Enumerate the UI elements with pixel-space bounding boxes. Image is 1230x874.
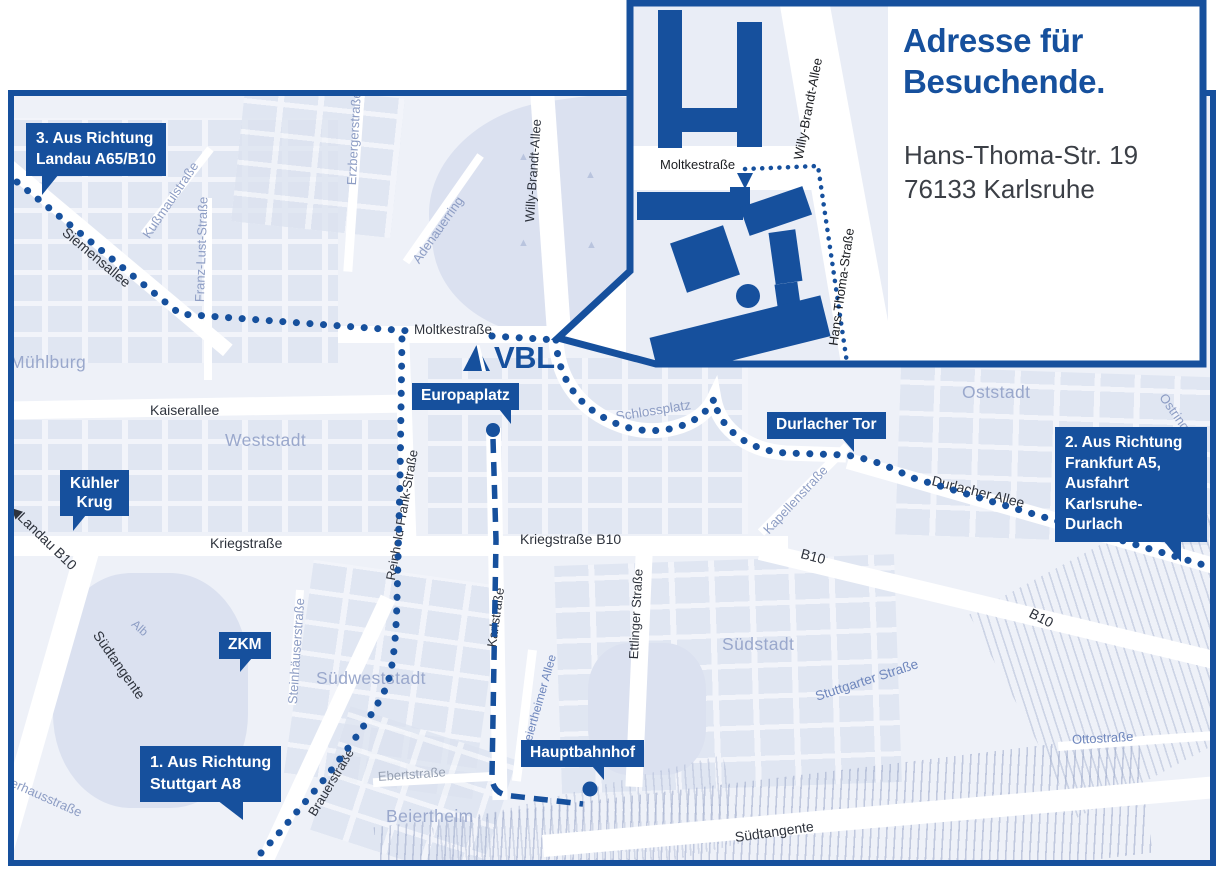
district-suedstadt: Südstadt: [722, 635, 794, 654]
city-blocks: [428, 358, 748, 534]
street-label-moltkestrasse: Moltkestraße: [414, 323, 492, 338]
city-blocks: [231, 90, 405, 238]
street-label-kriegstrasse: Kriegstraße: [210, 536, 282, 551]
tree-icon: ▲: [518, 238, 529, 249]
street-label-kapellenstrasse: Kapellenstraße: [761, 463, 831, 537]
inset-title-line1: Adresse für: [903, 20, 1105, 61]
street-label-kriegstrasse-b10: Kriegstraße B10: [520, 532, 621, 547]
city-blocks: [8, 420, 400, 532]
district-oststadt: Oststadt: [962, 383, 1030, 402]
tree-icon: ▲: [586, 240, 597, 251]
street-label-kaiserallee: Kaiserallee: [150, 403, 219, 418]
karlsruhe-directions-map: ▲ ▲ ▲ ▲ Mühlburg Weststadt Oststadt: [0, 0, 1230, 874]
district-weststadt: Weststadt: [225, 431, 306, 450]
schlossgarten-park: [415, 90, 745, 355]
map-canvas: ▲ ▲ ▲ ▲ Mühlburg Weststadt Oststadt: [8, 90, 1216, 866]
district-suedweststadt: Südweststadt: [316, 669, 426, 688]
district-muehlburg: Mühlburg: [10, 353, 86, 372]
tree-icon: ▲: [585, 170, 596, 181]
district-beiertheim: Beiertheim: [386, 807, 474, 826]
